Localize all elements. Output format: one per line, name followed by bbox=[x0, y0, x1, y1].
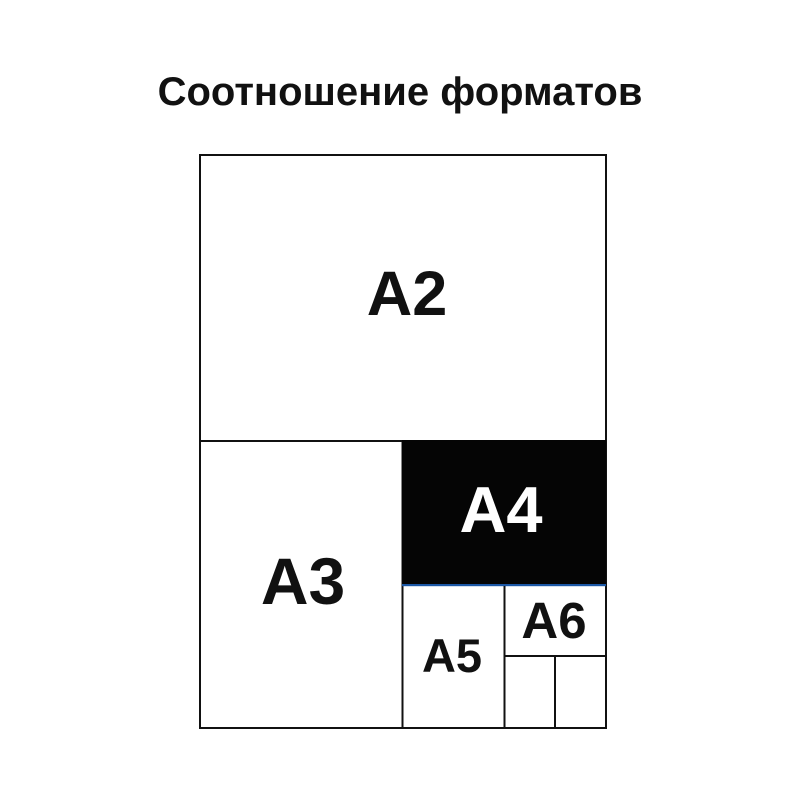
svg-text:A2: A2 bbox=[367, 259, 448, 329]
svg-text:A3: A3 bbox=[261, 544, 345, 618]
svg-text:Соотношение форматов: Соотношение форматов bbox=[158, 70, 643, 114]
svg-text:A6: A6 bbox=[521, 592, 586, 649]
svg-text:A5: A5 bbox=[422, 629, 482, 682]
svg-text:A4: A4 bbox=[459, 473, 542, 546]
